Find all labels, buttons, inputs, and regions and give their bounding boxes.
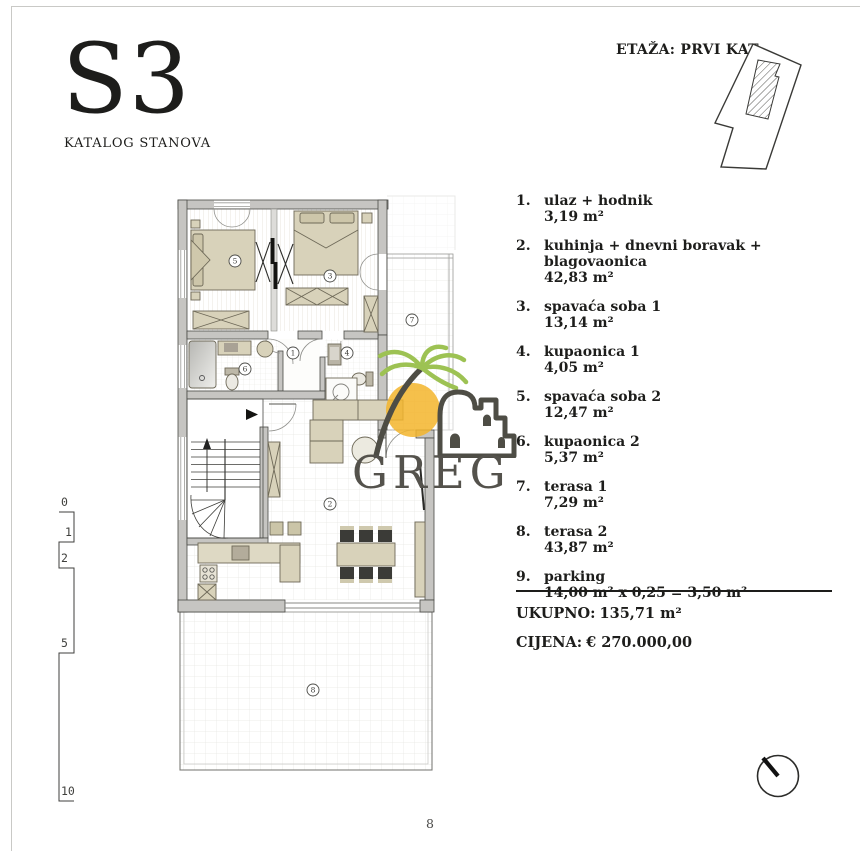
room-area: 43,87 m² <box>544 540 848 556</box>
svg-text:5: 5 <box>61 636 68 650</box>
room-row: 8.terasa 243,87 m² <box>516 524 848 556</box>
stool <box>288 522 301 535</box>
room-marker-7: 7 <box>406 314 418 326</box>
room-marker-8: 8 <box>307 684 319 696</box>
basin <box>257 341 273 357</box>
room-row: 5.spavaća soba 212,47 m² <box>516 389 848 421</box>
room-name: kuhinja + dnevni boravak + blagovaonica <box>544 238 848 270</box>
room-number: 3. <box>516 299 544 315</box>
svg-text:2: 2 <box>61 551 68 565</box>
room-area: 5,37 m² <box>544 450 848 466</box>
svg-text:5: 5 <box>233 257 238 266</box>
room-number: 1. <box>516 193 544 209</box>
price-label: CIJENA: <box>516 634 582 651</box>
room-number: 4. <box>516 344 544 360</box>
svg-text:10: 10 <box>61 784 75 798</box>
room-name: ulaz + hodnik <box>544 193 653 209</box>
toilet <box>226 374 238 390</box>
catalog-label: KATALOG STANOVA <box>64 136 211 151</box>
neighbour-unit-faint <box>387 196 455 250</box>
svg-text:3: 3 <box>328 272 333 281</box>
bedroom2-furniture <box>191 220 255 329</box>
room-row: 1.ulaz + hodnik3,19 m² <box>516 193 848 225</box>
island <box>280 545 300 582</box>
brand-watermark-text: GREG <box>352 446 532 499</box>
room-number: 8. <box>516 524 544 540</box>
room-area: 13,14 m² <box>544 315 848 331</box>
room-row: 3.spavaća soba 113,14 m² <box>516 299 848 331</box>
shower <box>189 341 216 388</box>
room-number: 9. <box>516 569 544 585</box>
terrace-2-area <box>180 612 432 770</box>
room-marker-5: 5 <box>229 255 241 267</box>
room-row: 9.parking14,00 m² x 0,25 = 3,50 m² <box>516 569 848 601</box>
room-marker-3: 3 <box>324 270 336 282</box>
dresser <box>286 288 348 305</box>
room-area: 42,83 m² <box>544 270 848 286</box>
room-name: terasa 1 <box>544 479 607 495</box>
room-number: 2. <box>516 238 544 270</box>
room-number: 5. <box>516 389 544 405</box>
svg-text:4: 4 <box>345 349 350 358</box>
room-marker-6: 6 <box>239 363 251 375</box>
svg-text:6: 6 <box>243 365 248 374</box>
room-area: 3,19 m² <box>544 209 848 225</box>
room-legend: 1.ulaz + hodnik3,19 m² 2.kuhinja + dnevn… <box>516 193 848 614</box>
scale-bar: 0 1 2 5 10 <box>52 484 112 814</box>
room-area: 14,00 m² x 0,25 = 3,50 m² <box>544 585 848 601</box>
total-area: UKUPNO:135,71 m² <box>516 605 686 622</box>
compass-icon <box>748 746 808 806</box>
room-name: kupaonica 2 <box>544 434 640 450</box>
page-edge-left <box>11 6 12 851</box>
room-name: spavaća soba 2 <box>544 389 661 405</box>
stool <box>270 522 283 535</box>
svg-text:1: 1 <box>65 525 72 539</box>
catalog-page: S3 KATALOG STANOVA ETAŽA: PRVI KAT <box>0 0 860 853</box>
svg-text:1: 1 <box>291 349 296 358</box>
room-row: 4.kupaonica 14,05 m² <box>516 344 848 376</box>
room-marker-1: 1 <box>287 347 299 359</box>
price: CIJENA:€ 270.000,00 <box>516 634 696 651</box>
svg-text:7: 7 <box>410 316 415 325</box>
svg-text:0: 0 <box>61 495 68 509</box>
room-marker-2: 2 <box>324 498 336 510</box>
room-name: parking <box>544 569 605 585</box>
sideboard <box>415 522 425 597</box>
totals-divider <box>516 590 832 592</box>
room-row: 6.kupaonica 25,37 m² <box>516 434 848 466</box>
page-number: 8 <box>0 816 860 831</box>
room-area: 4,05 m² <box>544 360 848 376</box>
room-area: 7,29 m² <box>544 495 848 511</box>
svg-text:2: 2 <box>328 500 333 509</box>
dining-table <box>337 543 395 566</box>
sofa-seat <box>310 420 343 463</box>
room-row: 7.terasa 17,29 m² <box>516 479 848 511</box>
stove <box>200 565 217 582</box>
sliding-door <box>285 603 420 608</box>
room-name: terasa 2 <box>544 524 607 540</box>
total-area-label: UKUPNO: <box>516 605 596 622</box>
hall-floor <box>278 339 320 391</box>
room-name: kupaonica 1 <box>544 344 640 360</box>
brand-logo-icon <box>352 340 520 458</box>
total-area-value: 135,71 m² <box>600 605 682 622</box>
page-edge-top <box>12 6 860 7</box>
site-plan-icon <box>703 38 811 176</box>
kitchen-sink <box>232 546 249 560</box>
svg-text:8: 8 <box>311 686 316 695</box>
price-value: € 270.000,00 <box>586 634 692 651</box>
room-row: 2.kuhinja + dnevni boravak + blagovaonic… <box>516 238 848 286</box>
unit-code: S3 <box>62 34 191 125</box>
room-area: 12,47 m² <box>544 405 848 421</box>
room-name: spavaća soba 1 <box>544 299 661 315</box>
